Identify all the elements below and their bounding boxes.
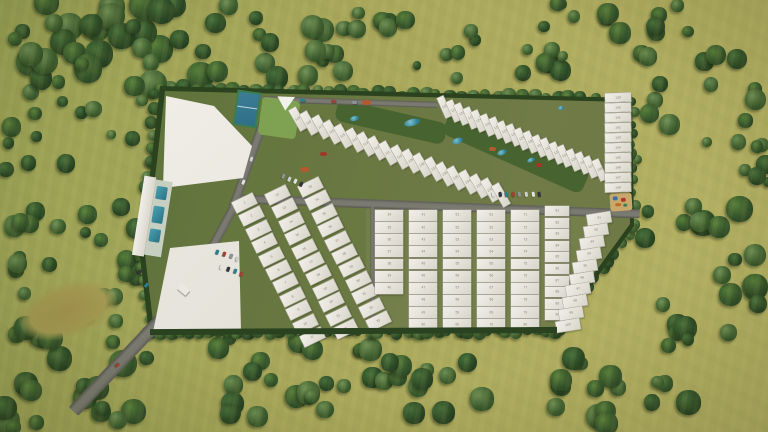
tree-icon [262,84,276,98]
plot-number: 51 [455,214,459,217]
plot: 38 [375,259,403,270]
plot-number: 97 [576,288,580,292]
tree-icon [31,48,58,75]
plot: 103 [469,174,488,199]
tree-icon [7,420,21,432]
plot: 71 [511,210,539,221]
tree-icon [144,300,156,312]
tree-icon [628,129,637,138]
tree-icon [324,86,333,95]
plot-number: 14 [289,220,294,225]
plot: 114 [345,128,364,153]
plot-number: 43 [421,238,425,241]
plot-number: 77 [523,287,527,290]
plot-number: 49 [421,311,425,314]
tree-icon [610,379,627,396]
landscape-trees [0,0,768,432]
plot: 42 [409,222,437,233]
car [525,191,528,196]
tree-icon [469,218,477,226]
tree-icon [685,198,702,215]
plot-number: 48 [421,299,425,302]
car [144,283,149,288]
tree-icon [755,138,768,152]
tree-icon [583,130,592,139]
tree-icon [337,278,346,287]
tree-icon [124,76,144,96]
tree-icon [495,172,504,181]
tree-icon [502,301,511,310]
tree-icon [334,84,348,98]
playground [609,192,632,211]
road [558,213,598,318]
tree-icon [502,263,508,269]
plot-number: 54 [455,250,459,253]
plot: 111 [379,140,398,165]
tree-icon [75,106,88,119]
plot-number: 25 [322,212,327,217]
tree-icon [256,192,265,201]
tree-icon [304,217,313,226]
plot: 41 [409,210,437,221]
tree-icon [557,0,567,9]
garden-accent [300,167,309,172]
tree-icon [0,162,14,177]
plot: 24 [304,190,330,211]
plot-number: 23 [308,185,313,190]
plot: 35 [375,222,403,233]
plot: 1 [232,193,258,214]
plot-number: 60 [455,323,459,326]
tree-icon [221,392,244,415]
plot-number: 34 [387,214,391,217]
tree-icon [706,45,726,65]
car [222,252,226,258]
tree-icon [319,241,328,250]
car [531,191,534,196]
tree-icon [86,376,110,400]
plot-number: 84 [555,244,559,247]
tree-icon [29,415,44,430]
plot: 68 [477,295,505,306]
tree-icon [439,367,457,385]
plot-number: 82 [555,221,559,224]
tree-icon [652,76,668,92]
plot: 2 [238,206,264,227]
plot: 94 [576,247,601,261]
tree-icon [537,258,544,265]
tree-icon [595,412,618,432]
plot: 84 [545,241,569,251]
car [492,191,495,196]
plot-number: 103 [476,183,482,189]
tree-icon [349,302,357,310]
tree-icon [607,169,620,182]
tree-icon [443,90,457,104]
tree-icon [202,84,216,98]
tree-icon [143,54,159,70]
plot-number: 50 [421,323,425,326]
road-network [0,0,768,432]
tree-icon [396,15,407,26]
tree-icon [445,175,453,183]
plot-number: 138 [596,167,602,172]
tree-icon [380,13,399,32]
tree-icon [745,89,767,111]
car [219,265,223,271]
plot: 13 [271,198,297,219]
tree-icon [85,40,113,68]
tree-icon [503,251,510,258]
tree-icon [95,401,110,416]
tree-icon [742,274,768,300]
tree-icon [379,18,398,37]
tree-icon [23,84,39,100]
plot: 93 [579,235,604,249]
plot-number: 69 [489,311,493,314]
plot: 106 [435,161,454,186]
tree-icon [28,107,41,120]
plot: 67 [477,283,505,294]
tree-icon [432,251,441,260]
clubhouse-building [0,0,768,432]
tree-icon [0,408,20,432]
tree-icon [596,143,604,151]
pool-amenity [132,174,181,263]
tree-icon [112,198,130,216]
tree-icon [139,275,150,286]
tree-icon [206,218,216,228]
tree-icon [551,376,571,396]
parked-cars-layer [0,0,768,432]
plot: 3 [245,219,271,240]
plot: 86 [545,264,569,274]
plot-number: 108 [419,162,425,168]
plot: 100 [555,318,580,332]
tree-icon [627,163,637,173]
plot-number: 79 [523,311,527,314]
tree-icon [296,84,310,98]
tree-icon [458,175,468,185]
plot: 117 [311,115,330,140]
plot-number: 78 [523,299,527,302]
plot: 95 [572,259,597,273]
tree-icon [316,401,334,419]
tree-icon [284,248,294,258]
boundary-hedge-south [150,327,557,335]
tree-icon [261,204,271,214]
tree-icon [146,35,174,63]
tree-icon [305,40,327,62]
plot: 82 [545,218,569,228]
plot-number: 109 [408,158,414,164]
plot-number: 24 [315,198,320,203]
tree-icon [99,0,125,20]
plot-number: 136 [579,160,585,165]
tree-icon [434,231,441,238]
plot-number: 81 [555,209,559,212]
tree-icon [591,93,601,103]
tree-icon [2,117,21,136]
plot: 58 [443,295,471,306]
plot: 30 [345,270,371,291]
tree-icon [695,52,714,71]
tree-icon [550,369,572,391]
tree-icon [301,165,311,175]
car [512,191,515,196]
plot-number: 35 [387,226,391,229]
tree-icon [537,238,544,245]
tree-icon [242,140,252,150]
plot: 51 [443,210,471,221]
tree-icon [568,10,581,23]
plot: 31 [352,284,378,305]
tree-icon [349,191,357,199]
masterplan-aerial-render: 1234567891011121314151617181920212223242… [0,0,768,432]
tree-icon [80,14,103,37]
tree-icon [671,0,683,12]
tree-icon [613,93,622,102]
tree-icon [150,163,159,172]
plot-number: 66 [489,274,493,277]
playground-equipment-blue [613,196,618,200]
plot-number: 18 [316,273,321,278]
car [505,191,508,196]
playground-equipment-orange [615,203,621,206]
playground-equipment-red [621,198,626,202]
plot: 110 [390,144,409,169]
tree-icon [312,232,320,240]
plot: 61 [477,210,505,221]
tree-icon [226,181,235,190]
plot-number: 75 [523,262,527,265]
tree-icon [333,61,353,81]
tree-icon [403,402,424,423]
tree-icon [440,48,453,61]
tree-icon [191,84,202,95]
tree-icon [232,166,241,175]
tree-icon [367,145,377,155]
tree-icon [651,7,667,23]
tree-icon [682,333,695,346]
plot-number: 13 [282,206,287,211]
tree-icon [264,373,278,387]
tree-icon [118,266,134,282]
tree-icon [366,186,373,193]
plot-number: 17 [309,260,314,265]
car [249,157,253,163]
plot-number: 96 [579,276,583,280]
tree-icon [276,139,288,151]
tree-icon [390,355,412,377]
tree-icon [370,270,378,278]
plot: 63 [477,234,505,245]
tree-icon [399,219,407,227]
tree-icon [139,70,167,98]
tree-icon [208,337,230,359]
plot: 102 [481,178,500,203]
tree-icon [537,225,544,232]
tree-icon [516,89,529,102]
tree-icon [745,274,767,296]
tree-icon [343,215,352,224]
plot-number: 135 [570,157,576,162]
plot: 108 [413,153,432,178]
plot: 32 [359,297,385,318]
plot-number: 5 [270,255,273,259]
mow-pattern-2 [0,0,768,432]
tree-icon [667,314,688,335]
tree-icon [400,282,408,290]
tree-icon [635,228,655,248]
tree-icon [167,83,180,96]
plot-number: 31 [363,292,368,297]
tree-icon [292,263,300,271]
tree-icon [599,114,607,122]
plot-number: 37 [387,250,391,253]
tree-icon [107,130,116,139]
plot-number: 32 [369,305,374,310]
tree-icon [529,89,541,101]
tree-icon [401,238,409,246]
tree-icon [536,53,555,72]
tree-icon [719,283,742,306]
tree-icon [435,239,443,247]
car [281,173,285,179]
plot: 148 [605,183,631,193]
plot-number: 141 [615,116,621,119]
car [538,191,541,196]
tree-icon [268,216,278,226]
plot: 43 [409,234,437,245]
tree-icon [644,394,661,411]
tree-icon [346,213,355,222]
tree-icon [355,243,364,252]
plot: 47 [409,283,437,294]
plot-number: 105 [453,175,459,181]
linear-park-east [441,109,590,195]
tree-icon [586,404,611,429]
plot: 39 [375,271,403,282]
plot: 141 [605,113,631,123]
tree-icon [8,254,27,273]
tree-icon [175,267,187,279]
tree-icon [480,89,491,100]
plot: 90 [545,310,569,320]
tree-icon [145,158,154,167]
tree-icon [469,227,477,235]
plot-number: 21 [336,313,341,318]
plot: 64 [477,246,505,257]
plot-number: 83 [555,233,559,236]
tree-icon [330,191,339,200]
tree-icon [763,177,768,187]
tree-icon [587,380,604,397]
plot: 44 [409,246,437,257]
plot: 46 [409,271,437,282]
tree-icon [607,248,620,261]
tree-icon [109,411,127,429]
tree-icon [642,205,654,217]
tree-icon [661,338,676,353]
plot-number: 98 [572,300,576,304]
plot: 37 [375,246,403,257]
plot-number: 61 [489,214,493,217]
car [115,363,120,368]
tree-icon [562,308,576,322]
tree-icon [26,202,45,221]
plot-number: 26 [329,225,334,230]
tree-icon [558,51,568,61]
tree-icon [374,284,383,293]
tree-icon [550,60,571,81]
plot-number: 111 [385,150,391,155]
plot-number: 137 [588,164,594,169]
plot: 115 [334,123,353,148]
swimming-pool [155,186,168,201]
tree-icon [215,83,228,96]
plot: 101 [492,182,511,207]
tree-icon [298,163,306,171]
plot: 97 [565,283,590,297]
tree-icon [52,75,65,88]
plot-number: 107 [430,167,436,173]
plot: 74 [511,246,539,257]
grass-field [0,0,768,432]
tree-icon [538,52,559,73]
plot-number: 113 [363,141,369,146]
tree-icon [434,263,440,269]
tree-icon [106,335,120,349]
plot-number: 120 [441,104,447,109]
tree-icon [373,12,391,30]
tree-icon [470,387,493,410]
plot-number: 27 [335,238,340,243]
tree-icon [538,269,545,276]
tree-icon [30,67,53,90]
tree-icon [407,87,420,100]
plot: 66 [477,271,505,282]
plot: 113 [356,132,375,157]
tree-icon [467,260,475,268]
plot-number: 53 [455,238,459,241]
tree-icon [170,30,189,49]
plot-number: 85 [555,256,559,259]
tree-icon [500,291,509,300]
plot-number: 44 [421,250,425,253]
tree-icon [467,90,480,103]
tree-icon [172,273,181,282]
tree-icon [289,184,296,191]
tree-icon [413,61,422,70]
tree-icon [16,48,45,77]
tree-icon [279,240,288,249]
plot-number: 99 [569,312,573,316]
tree-icon [559,318,571,330]
tree-icon [436,315,443,322]
tree-icon [744,244,767,267]
tree-icon [305,286,314,295]
plot-number: 58 [455,299,459,302]
plot: 144 [605,143,631,153]
plot-number: 57 [455,287,459,290]
tree-icon [45,14,63,32]
tree-icon [749,295,767,313]
plot: 27 [325,230,351,251]
plot: 54 [443,246,471,257]
tree-icon [221,194,230,203]
tree-icon [146,142,159,155]
